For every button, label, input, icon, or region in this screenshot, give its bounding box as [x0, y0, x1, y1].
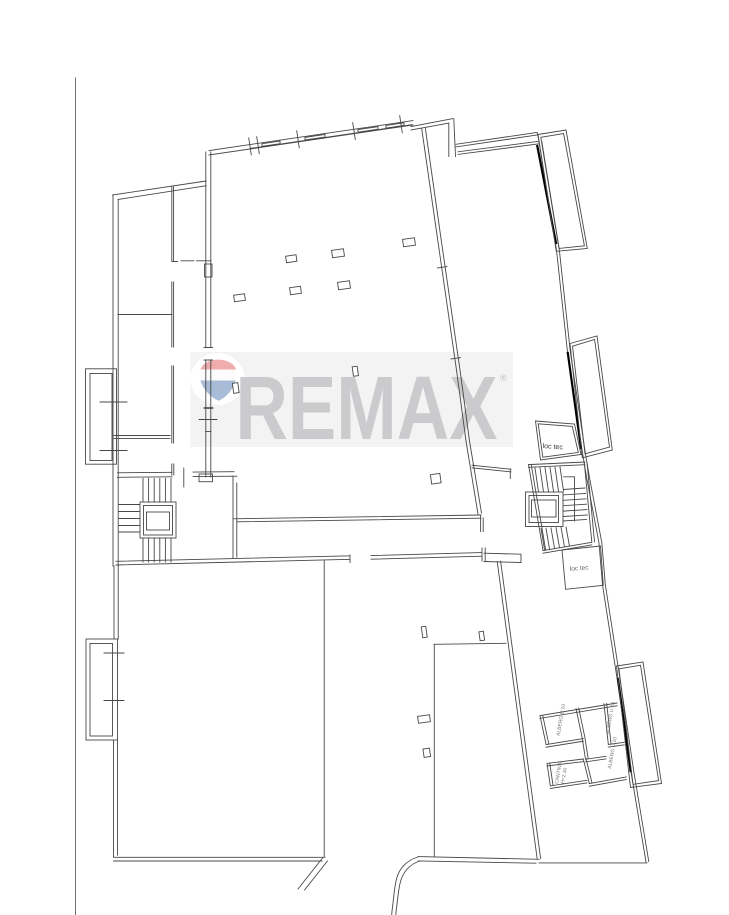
svg-text:loc tec: loc tec	[570, 564, 590, 573]
svg-text:ALBERG U.10: ALBERG U.10	[556, 703, 568, 736]
svg-text:ALBERG U.10: ALBERG U.10	[607, 736, 619, 769]
svg-text:REMAX: REMAX	[236, 359, 498, 459]
svg-text:®: ®	[500, 373, 507, 383]
svg-text:loc tec: loc tec	[542, 443, 563, 451]
